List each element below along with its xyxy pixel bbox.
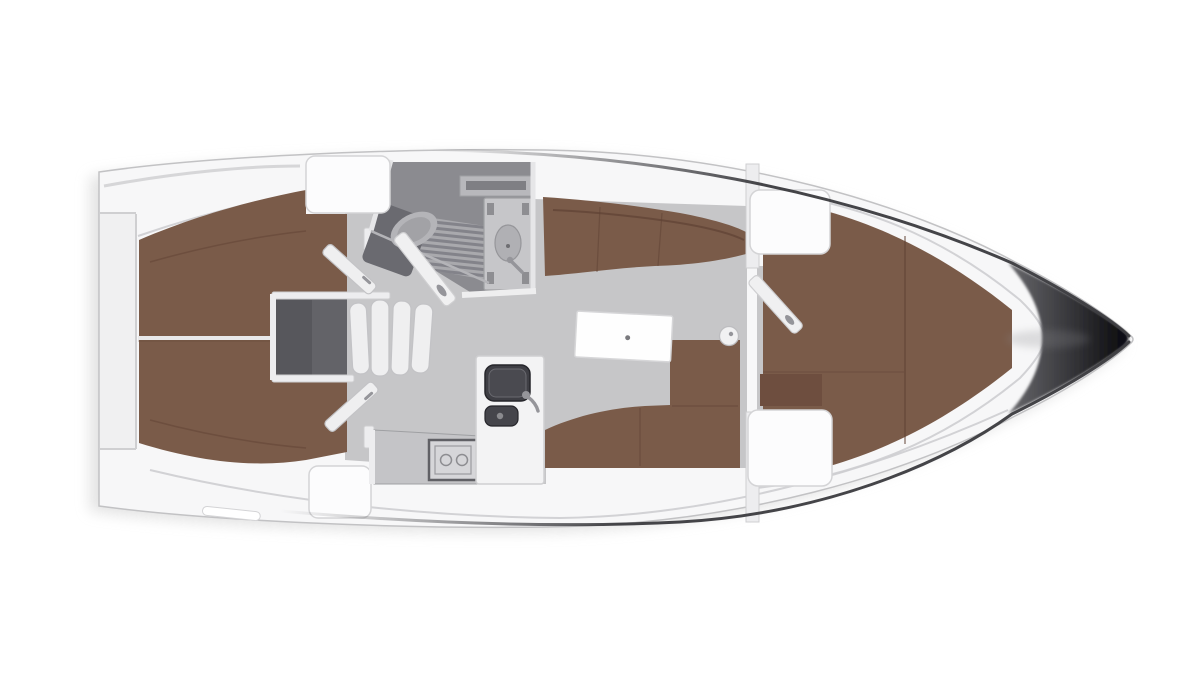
galley-second-basin	[485, 406, 518, 426]
yacht-floorplan	[0, 0, 1200, 675]
companionway-wall-left	[270, 294, 276, 380]
salon-table	[575, 311, 673, 362]
stove	[429, 440, 477, 480]
forecabin-foot-bench	[760, 374, 822, 406]
head-sink	[484, 198, 532, 290]
head-basin-drain	[506, 244, 510, 248]
wardrobe-block-top	[750, 190, 830, 254]
yacht-floorplan-canvas	[0, 0, 1200, 675]
deck-hatch-bottom	[309, 466, 371, 518]
galley-wall-left	[369, 430, 375, 484]
wardrobe-block-bottom	[748, 410, 832, 486]
companionway-wall-top	[272, 292, 390, 299]
head-basin	[495, 225, 521, 261]
bow-highlight	[1006, 330, 1090, 348]
deck-hatch-top	[306, 156, 390, 213]
companionway-wall-bottom	[272, 375, 354, 382]
compression-post	[720, 327, 739, 346]
transom-shading	[100, 214, 136, 449]
head-shelf-slot	[466, 181, 526, 190]
engine-box-inner-shade	[312, 300, 347, 375]
head-sill	[462, 291, 536, 295]
